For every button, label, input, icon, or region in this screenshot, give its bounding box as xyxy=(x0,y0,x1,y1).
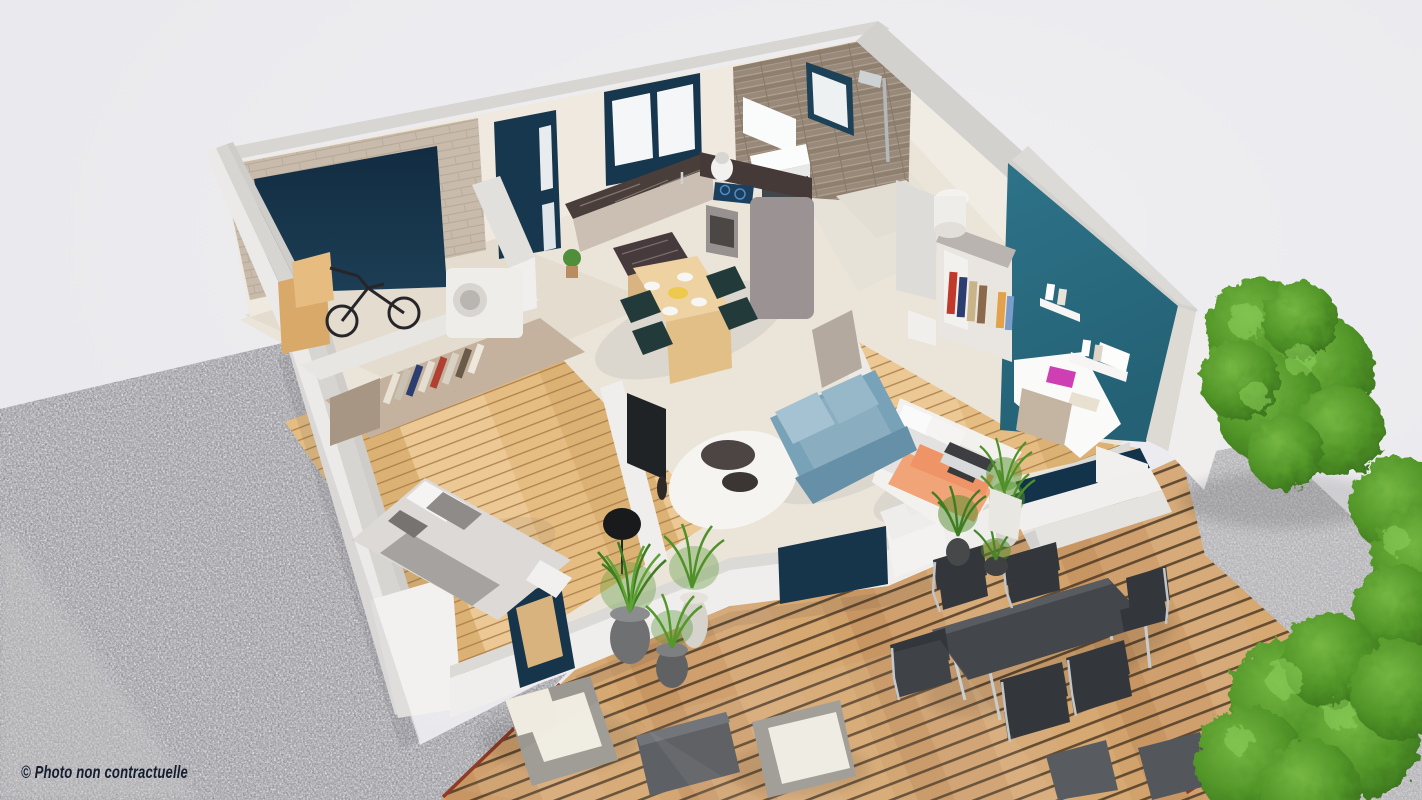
svg-text:© Photo non contractuelle: © Photo non contractuelle xyxy=(21,762,188,782)
